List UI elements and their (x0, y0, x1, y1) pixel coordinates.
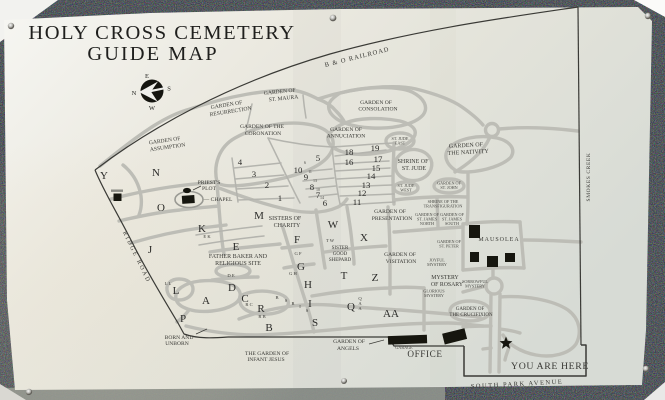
svg-text:N: N (132, 90, 137, 97)
svg-text:Y: Y (100, 170, 108, 182)
svg-text:MYSTERY: MYSTERY (465, 284, 485, 289)
svg-text:GARDEN OF: GARDEN OF (374, 209, 406, 215)
svg-text:THE CRUCIFIXION: THE CRUCIFIXION (449, 313, 493, 318)
svg-text:19: 19 (371, 143, 380, 153)
svg-text:B: B (265, 322, 272, 334)
svg-text:SOUTH: SOUTH (445, 221, 459, 226)
svg-text:16: 16 (345, 157, 354, 167)
svg-text:8: 8 (310, 182, 315, 192)
svg-text:NORTH: NORTH (420, 221, 434, 226)
svg-text:RELIGIOUS SITE: RELIGIOUS SITE (215, 261, 261, 267)
svg-text:E K: E K (203, 234, 211, 239)
svg-text:4: 4 (238, 157, 243, 167)
svg-text:SISTERS OF: SISTERS OF (269, 216, 302, 222)
svg-text:B: B (275, 295, 278, 300)
svg-text:5: 5 (316, 153, 321, 163)
svg-text:CHARITY: CHARITY (274, 223, 301, 229)
svg-text:ST. JUDE: ST. JUDE (402, 166, 427, 172)
svg-text:MYSTERY: MYSTERY (427, 262, 447, 267)
svg-text:CONSOLATION: CONSOLATION (358, 107, 397, 113)
svg-text:OFFICE: OFFICE (407, 349, 442, 359)
svg-text:D E: D E (227, 273, 234, 278)
svg-text:GARDEN OF: GARDEN OF (333, 339, 365, 345)
svg-text:2: 2 (265, 180, 269, 190)
svg-text:P: P (180, 313, 186, 325)
svg-text:ANNUCIATION: ANNUCIATION (327, 134, 366, 140)
svg-text:Q: Q (347, 301, 355, 313)
svg-text:F: F (294, 234, 300, 246)
svg-text:GOOD: GOOD (333, 252, 348, 257)
svg-text:MAUSOLEA: MAUSOLEA (478, 237, 519, 243)
svg-text:H: H (304, 279, 312, 291)
svg-text:GARDEN OF: GARDEN OF (360, 100, 392, 106)
svg-text:ST. JOHN: ST. JOHN (440, 185, 457, 190)
svg-text:S: S (167, 86, 171, 93)
svg-text:J: J (148, 244, 153, 256)
svg-text:HOLY CROSS CEMETERY: HOLY CROSS CEMETERY (28, 22, 295, 44)
svg-text:R C: R C (245, 302, 252, 307)
svg-text:GUIDE MAP: GUIDE MAP (87, 43, 218, 65)
svg-text:11: 11 (308, 169, 312, 174)
svg-text:S: S (306, 308, 309, 313)
svg-text:11: 11 (353, 197, 361, 207)
svg-text:GARDEN OF THE: GARDEN OF THE (240, 124, 285, 130)
svg-text:L L: L L (165, 281, 172, 286)
svg-text:X: X (360, 232, 368, 244)
svg-text:ANGELS: ANGELS (337, 346, 359, 352)
svg-text:PRESENTATION: PRESENTATION (372, 216, 413, 222)
svg-text:3: 3 (252, 169, 257, 179)
svg-text:S: S (285, 298, 288, 303)
svg-text:MYSTERY: MYSTERY (424, 293, 444, 298)
svg-text:GARDEN OF: GARDEN OF (384, 252, 416, 258)
svg-text:INFANT JESUS: INFANT JESUS (247, 357, 284, 363)
svg-text:AA: AA (383, 308, 399, 320)
svg-text:I: I (308, 298, 312, 310)
svg-text:ST. PETER: ST. PETER (439, 244, 459, 249)
svg-text:Z: Z (372, 272, 379, 284)
svg-text:E: E (233, 241, 240, 253)
svg-text:A: A (202, 295, 210, 307)
svg-text:WEST: WEST (400, 188, 412, 193)
svg-text:— CHAPEL: — CHAPEL (203, 197, 233, 203)
svg-text:D: D (228, 282, 236, 294)
svg-text:SISTER: SISTER (332, 246, 349, 251)
svg-text:E: E (145, 73, 149, 80)
svg-text:10: 10 (316, 187, 320, 192)
svg-text:18: 18 (345, 147, 354, 157)
svg-text:G F: G F (294, 251, 301, 256)
svg-text:SHRINE OF: SHRINE OF (398, 159, 430, 165)
svg-text:UNBORN: UNBORN (165, 341, 189, 347)
svg-text:L: L (173, 285, 180, 297)
svg-text:N: N (152, 167, 160, 179)
svg-text:VISITATION: VISITATION (386, 259, 417, 265)
svg-text:O: O (157, 202, 165, 214)
svg-text:W: W (328, 219, 339, 231)
svg-text:6: 6 (304, 160, 306, 165)
svg-text:1: 1 (278, 193, 282, 203)
svg-text:GARAGE: GARAGE (395, 345, 413, 350)
svg-text:G: G (297, 261, 305, 273)
svg-text:TRANSFIGURATION: TRANSFIGURATION (424, 204, 463, 209)
svg-text:YOU ARE HERE: YOU ARE HERE (511, 361, 589, 372)
svg-text:R B: R B (258, 314, 265, 319)
svg-text:14: 14 (320, 195, 324, 200)
svg-text:SHEPARD: SHEPARD (329, 258, 352, 263)
svg-text:MYSTERY: MYSTERY (431, 275, 459, 281)
svg-text:FATHER BAKER AND: FATHER BAKER AND (209, 254, 268, 260)
svg-text:GARDEN OF: GARDEN OF (330, 127, 362, 133)
svg-text:T W: T W (326, 238, 335, 243)
svg-text:10: 10 (294, 165, 303, 175)
svg-text:M: M (254, 210, 264, 222)
svg-text:W: W (149, 105, 156, 112)
svg-text:G H: G H (289, 271, 297, 276)
svg-text:OF ROSARY: OF ROSARY (431, 282, 464, 288)
svg-text:SMOKES CREEK: SMOKES CREEK (586, 153, 592, 202)
svg-text:S: S (312, 317, 318, 329)
svg-text:T: T (341, 270, 348, 282)
svg-text:EAST: EAST (395, 141, 406, 146)
svg-text:GARDEN OF: GARDEN OF (456, 307, 485, 312)
svg-text:CORONATION: CORONATION (245, 131, 281, 137)
svg-text:PLOT: PLOT (202, 186, 217, 192)
svg-text:13: 13 (313, 178, 317, 183)
